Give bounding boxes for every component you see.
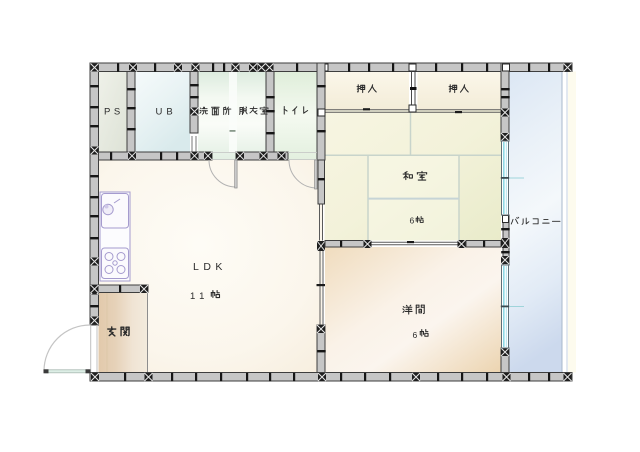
svg-text:6: 6: [410, 216, 415, 226]
svg-text:6: 6: [413, 330, 418, 340]
svg-text:UB: UB: [156, 107, 177, 118]
svg-text:11: 11: [190, 291, 209, 302]
svg-text:PS: PS: [104, 107, 124, 118]
svg-text:LDK: LDK: [193, 261, 227, 273]
